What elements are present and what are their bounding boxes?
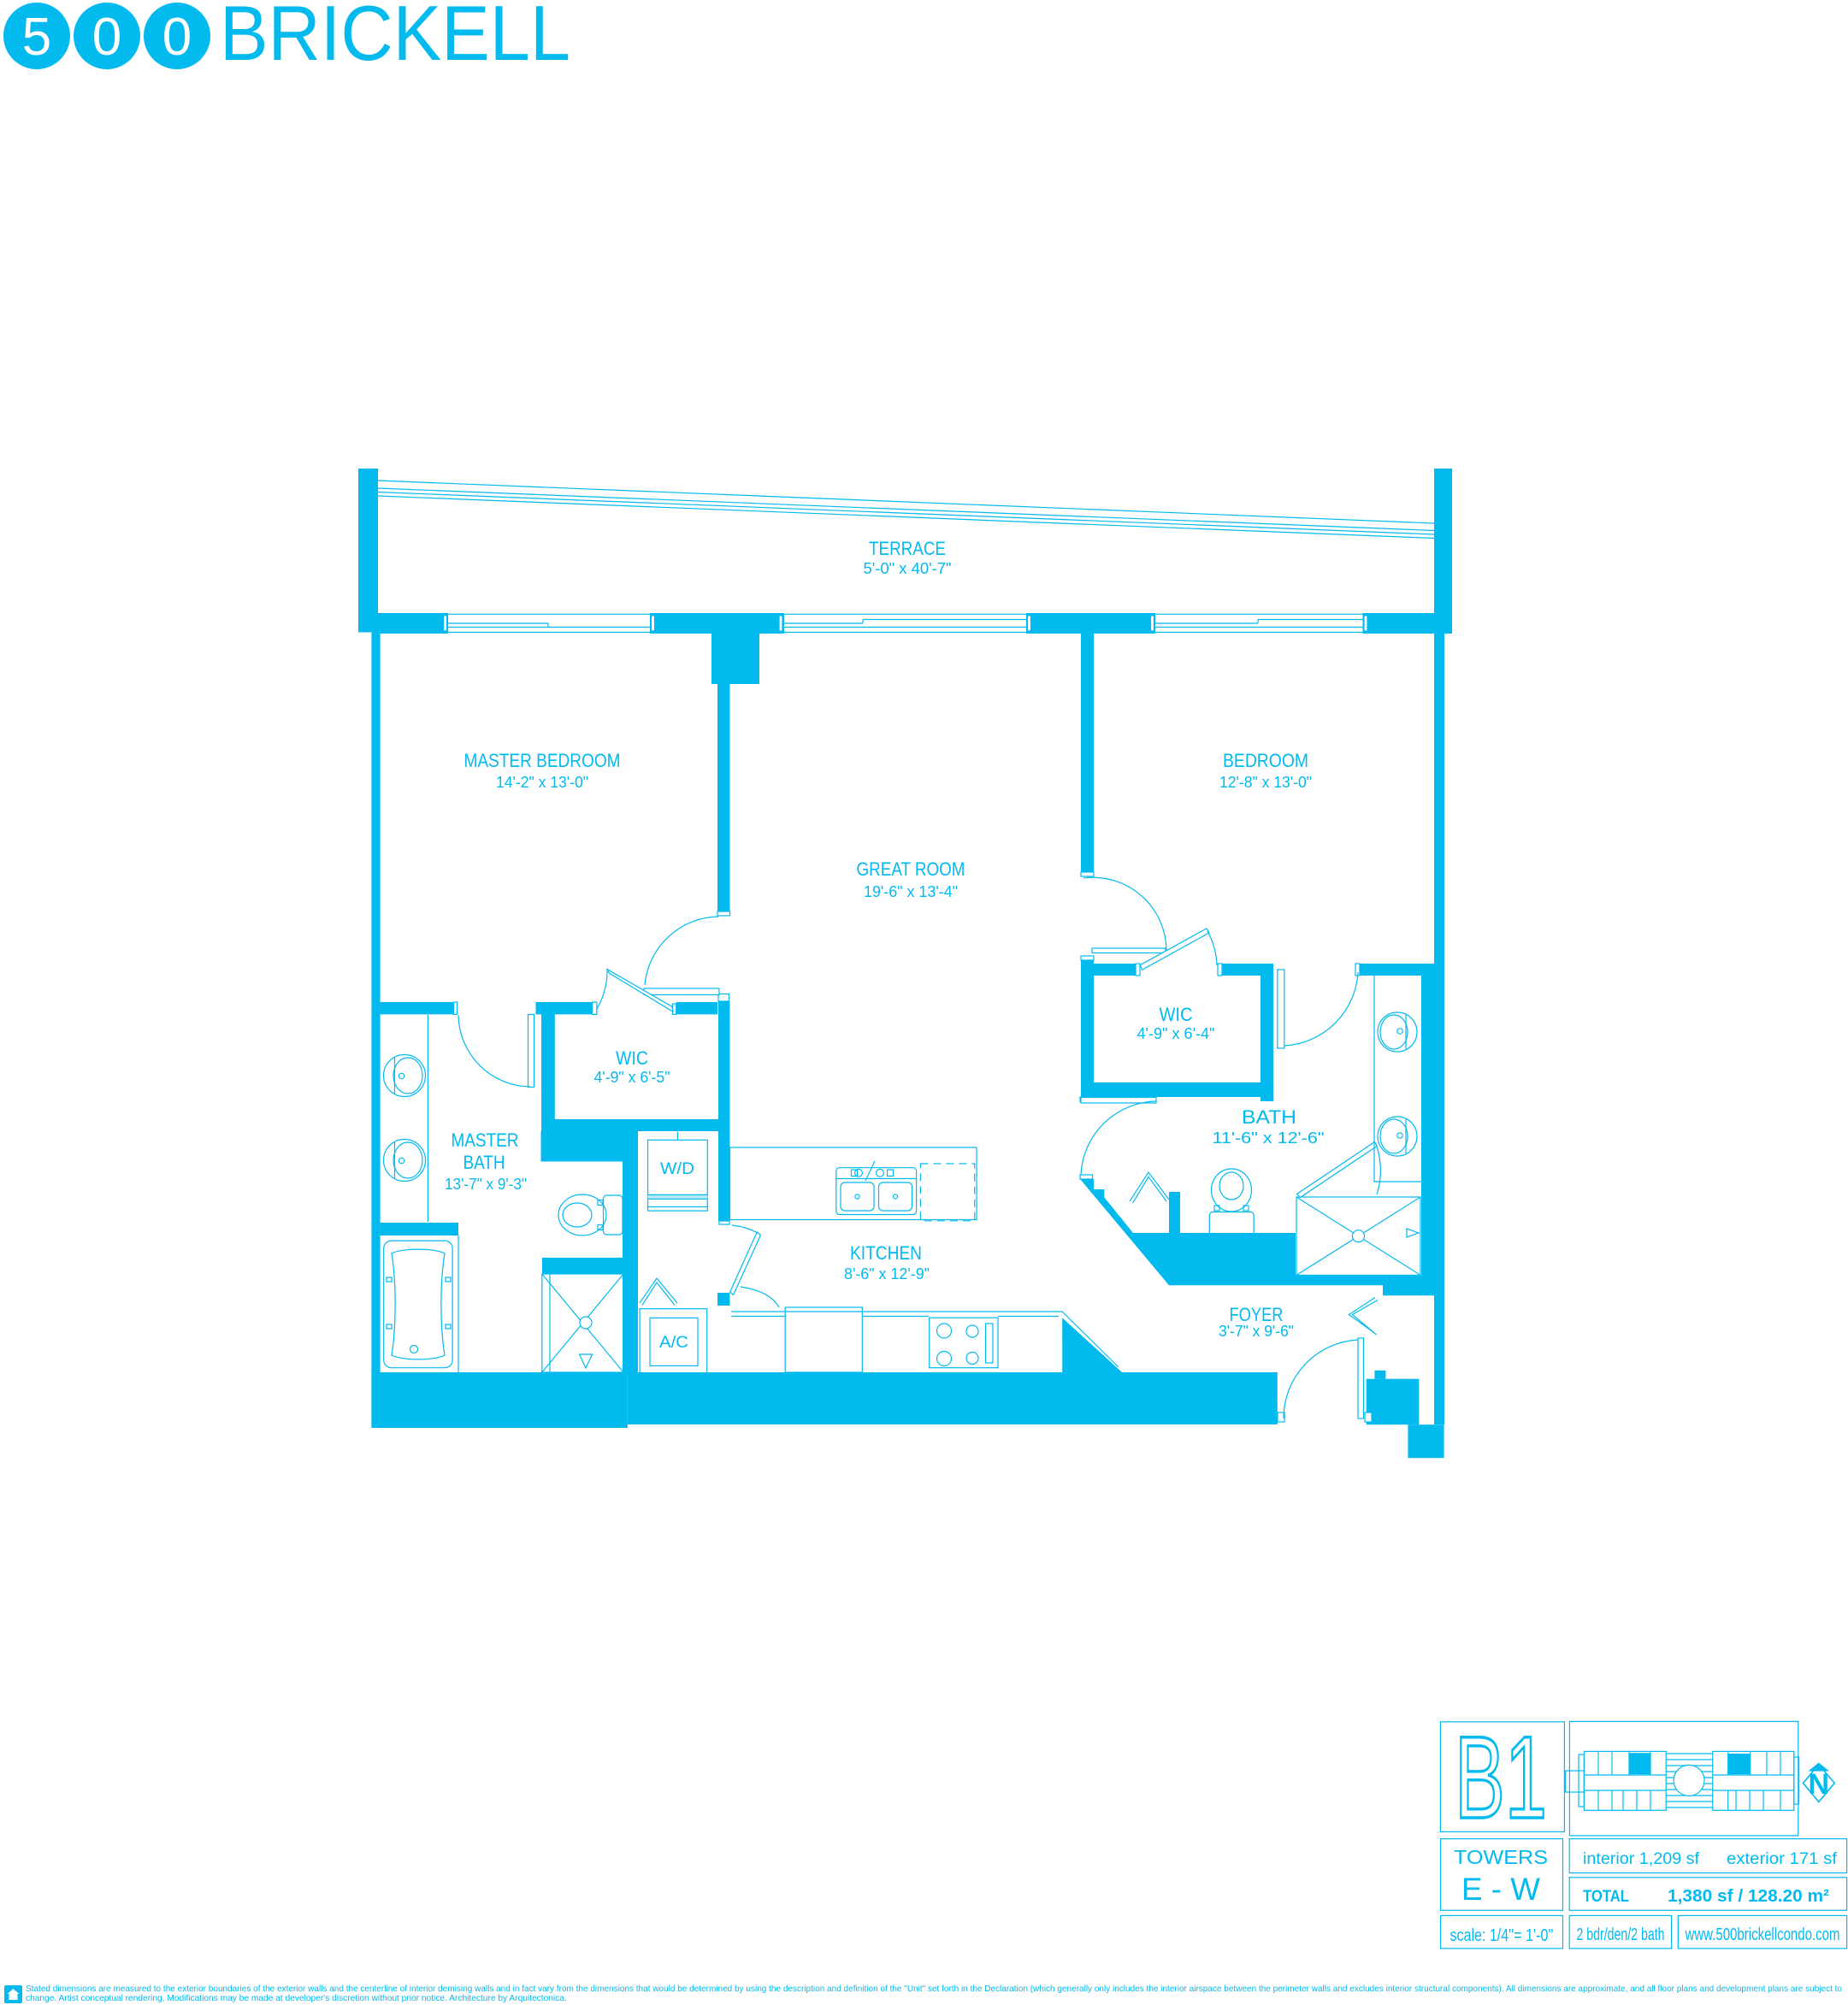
svg-text:TOTAL: TOTAL (1583, 1888, 1629, 1906)
svg-text:WIC: WIC (616, 1047, 648, 1069)
svg-text:GREAT ROOM: GREAT ROOM (857, 858, 965, 880)
svg-text:BATH: BATH (463, 1152, 505, 1173)
svg-text:0: 0 (162, 8, 192, 67)
svg-text:interior 1,209 sf: interior 1,209 sf (1583, 1850, 1700, 1868)
svg-text:WIC: WIC (1160, 1004, 1193, 1025)
svg-text:www.500brickellcondo.com: www.500brickellcondo.com (1685, 1925, 1840, 1944)
svg-text:TERRACE: TERRACE (869, 538, 946, 559)
svg-text:MASTER: MASTER (452, 1129, 519, 1151)
svg-text:14'-2" x 13'-0": 14'-2" x 13'-0" (496, 774, 588, 791)
svg-text:11'-6" x 12'-6": 11'-6" x 12'-6" (1213, 1129, 1325, 1147)
svg-text:3'-7" x 9'-6": 3'-7" x 9'-6" (1219, 1323, 1294, 1340)
svg-text:change. Artist conceptual rend: change. Artist conceptual rendering. Mod… (26, 1994, 567, 2003)
svg-text:13'-7" x 9'-3": 13'-7" x 9'-3" (445, 1176, 527, 1193)
svg-text:B1: B1 (1455, 1713, 1547, 1843)
svg-text:N: N (1809, 1768, 1830, 1801)
svg-text:TOWERS: TOWERS (1454, 1846, 1548, 1868)
svg-text:19'-6" x 13'-4": 19'-6" x 13'-4" (864, 883, 958, 900)
svg-text:2 bdr/den/2 bath: 2 bdr/den/2 bath (1577, 1925, 1665, 1944)
svg-text:MASTER BEDROOM: MASTER BEDROOM (464, 750, 621, 771)
svg-text:5'-0" x 40'-7": 5'-0" x 40'-7" (864, 560, 952, 577)
svg-text:A/C: A/C (659, 1333, 688, 1352)
svg-text:0: 0 (92, 8, 121, 67)
svg-text:8'-6" x 12'-9": 8'-6" x 12'-9" (844, 1265, 930, 1283)
svg-text:1,380 sf / 128.20 m²: 1,380 sf / 128.20 m² (1668, 1887, 1829, 1906)
svg-text:exterior 171 sf: exterior 171 sf (1727, 1850, 1838, 1868)
svg-text:E - W: E - W (1461, 1872, 1540, 1907)
svg-text:BATH: BATH (1242, 1106, 1296, 1128)
svg-text:BRICKELL: BRICKELL (220, 0, 570, 77)
svg-text:KITCHEN: KITCHEN (850, 1242, 922, 1264)
svg-text:scale: 1/4''= 1'-0'': scale: 1/4''= 1'-0'' (1450, 1926, 1554, 1945)
svg-text:BEDROOM: BEDROOM (1223, 750, 1308, 771)
svg-text:4'-9" x 6'-5": 4'-9" x 6'-5" (594, 1069, 670, 1086)
svg-text:Stated dimensions are measured: Stated dimensions are measured to the ex… (26, 1984, 1842, 1994)
svg-text:5: 5 (22, 8, 51, 67)
svg-text:4'-9" x 6'-4": 4'-9" x 6'-4" (1137, 1025, 1215, 1042)
svg-text:12'-8" x 13'-0": 12'-8" x 13'-0" (1219, 774, 1312, 791)
svg-text:W/D: W/D (660, 1159, 694, 1178)
